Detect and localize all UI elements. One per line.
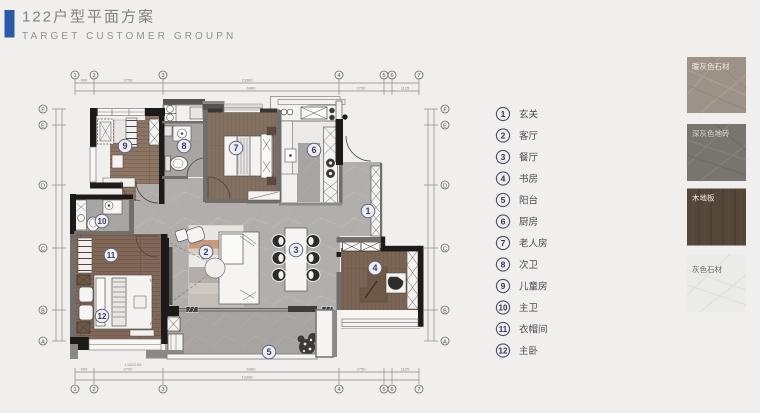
svg-text:客厅: 客厅 [519,130,539,142]
svg-text:9: 9 [122,141,127,151]
svg-text:2: 2 [92,73,95,79]
svg-text:2750: 2750 [124,367,134,372]
svg-text:900: 900 [81,78,88,83]
svg-text:餐厅: 餐厅 [519,152,539,164]
svg-text:12: 12 [98,312,107,321]
svg-text:老人房: 老人房 [519,238,548,250]
svg-text:5: 5 [266,347,271,357]
svg-text:1: 1 [365,206,370,216]
svg-text:TARGET CUSTOMER GROUPN: TARGET CUSTOMER GROUPN [22,31,236,42]
svg-text:厨房: 厨房 [519,216,538,228]
svg-text:深灰色地砖: 深灰色地砖 [692,128,730,138]
svg-text:1: 1 [73,387,76,393]
svg-text:4: 4 [372,263,377,273]
svg-text:A: A [41,340,45,346]
svg-text:2750: 2750 [124,78,134,83]
svg-text:衣帽间: 衣帽间 [519,324,548,336]
svg-text:4: 4 [337,387,340,393]
svg-text:玄关: 玄关 [519,109,539,121]
svg-text:13380: 13380 [241,375,253,380]
svg-text:2: 2 [203,247,208,257]
svg-text:3: 3 [293,245,298,255]
svg-text:6: 6 [311,145,316,155]
svg-text:6980: 6980 [247,86,257,91]
svg-text:900: 900 [81,367,88,372]
svg-text:阳台: 阳台 [519,195,538,207]
svg-text:2: 2 [501,131,506,141]
svg-text:6: 6 [390,73,393,79]
svg-text:9: 9 [501,281,506,291]
svg-text:11: 11 [107,251,116,260]
svg-text:B: B [443,309,447,315]
svg-text:C: C [443,247,447,253]
svg-text:10: 10 [98,217,107,226]
svg-text:C: C [41,247,45,253]
svg-text:6980: 6980 [247,367,257,372]
svg-text:10: 10 [499,304,508,313]
svg-text:2: 2 [92,387,95,393]
svg-text:B: B [41,309,45,315]
svg-text:5: 5 [382,73,385,79]
svg-text:3: 3 [161,73,164,79]
svg-text:A: A [443,340,447,346]
svg-text:7: 7 [233,143,238,153]
svg-text:8: 8 [181,141,186,151]
svg-text:3: 3 [501,152,506,162]
svg-text:1: 1 [73,73,76,79]
svg-text:12: 12 [499,347,508,356]
svg-text:122户型平面方案: 122户型平面方案 [22,8,155,26]
svg-text:主卧: 主卧 [519,345,539,357]
svg-text:L1523.05: L1523.05 [125,362,142,367]
svg-text:书房: 书房 [519,173,538,185]
svg-text:1125: 1125 [401,86,410,91]
svg-text:5: 5 [382,387,385,393]
svg-text:6: 6 [501,217,506,227]
svg-text:儿童房: 儿童房 [519,281,548,293]
svg-text:5: 5 [501,195,506,205]
svg-text:木地板: 木地板 [692,193,715,203]
svg-text:8: 8 [501,260,506,270]
svg-text:1: 1 [501,109,506,119]
svg-text:E: E [443,124,447,130]
svg-text:7: 7 [501,238,506,248]
svg-text:2750: 2750 [357,86,367,91]
svg-text:3: 3 [161,387,164,393]
svg-text:7: 7 [417,387,420,393]
svg-text:11: 11 [499,325,508,334]
svg-text:6: 6 [390,387,393,393]
svg-text:2750: 2750 [357,367,367,372]
svg-text:主卫: 主卫 [519,302,539,314]
svg-text:E: E [41,124,45,130]
svg-text:暖灰色石材: 暖灰色石材 [692,61,730,71]
svg-text:D: D [443,184,447,190]
svg-text:7: 7 [417,73,420,79]
svg-text:13380: 13380 [241,78,253,83]
svg-text:次卫: 次卫 [519,259,539,271]
svg-text:4: 4 [337,73,340,79]
svg-text:4: 4 [501,174,506,184]
svg-text:灰色石材: 灰色石材 [692,264,722,274]
svg-text:1125: 1125 [401,367,410,372]
svg-text:D: D [41,184,45,190]
